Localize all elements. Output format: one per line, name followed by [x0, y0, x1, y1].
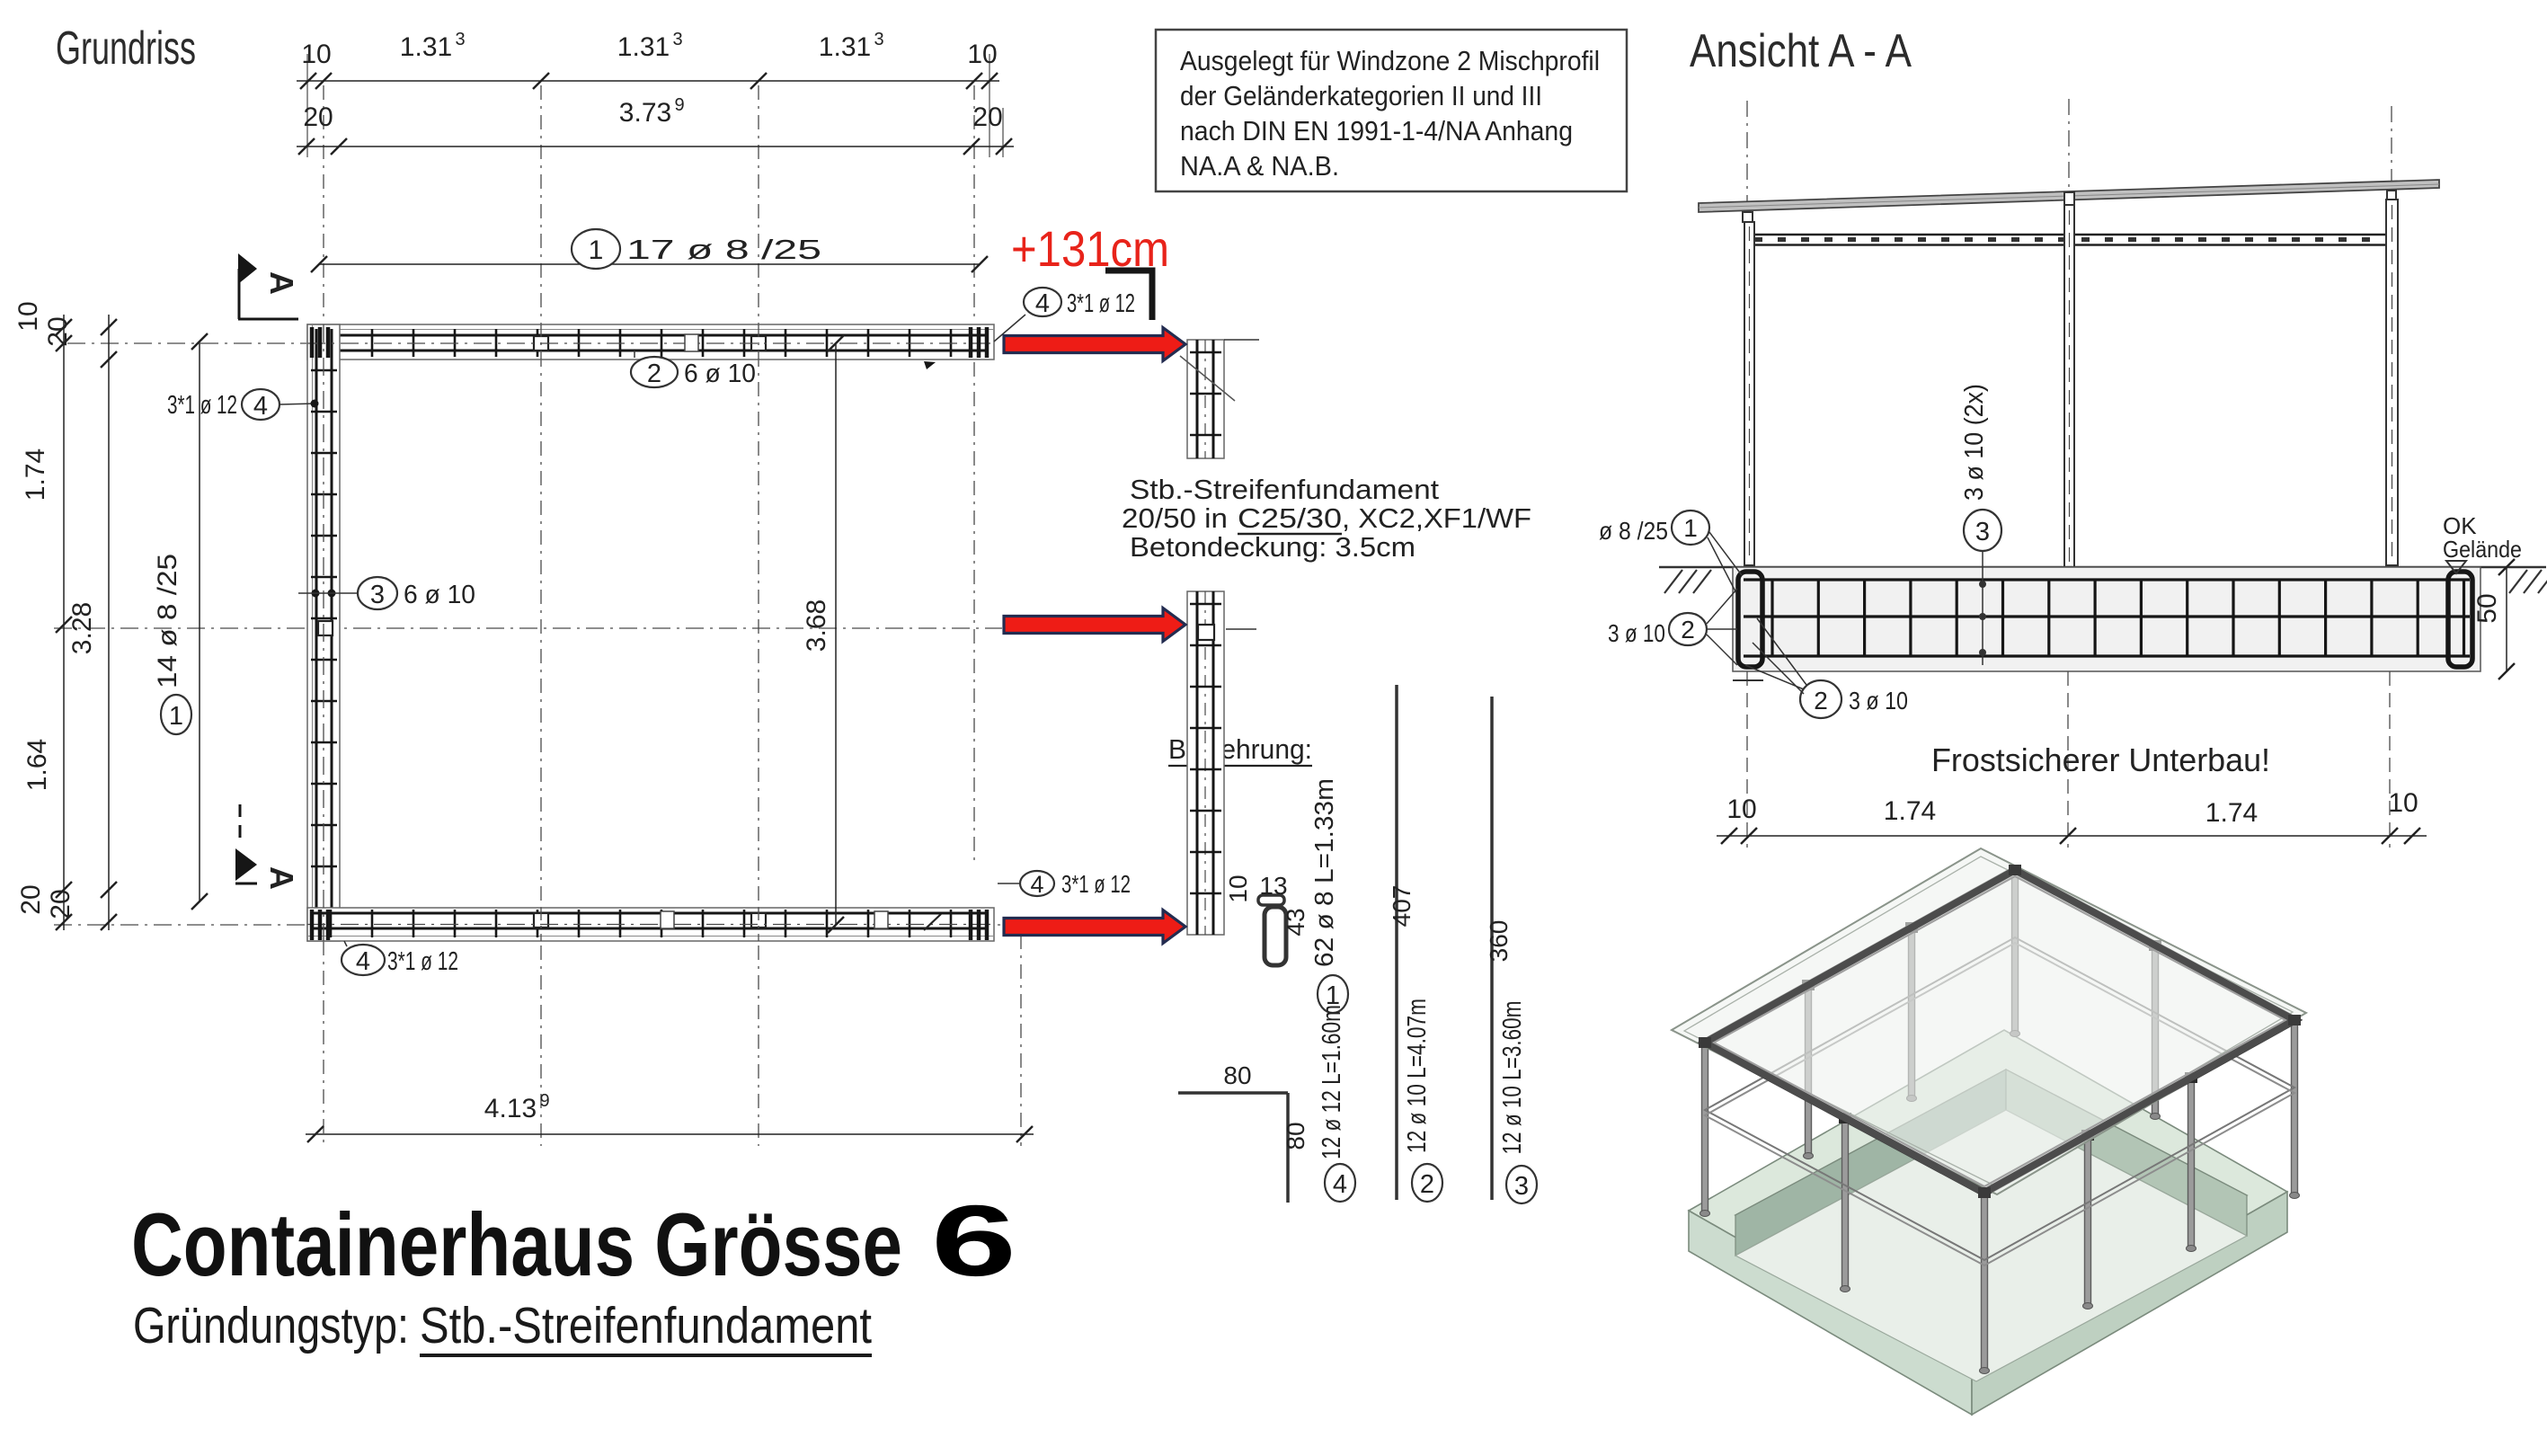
- svg-text:3: 3: [672, 30, 682, 49]
- svg-text:50: 50: [2472, 593, 2502, 623]
- svg-text:3*1 ø 12: 3*1 ø 12: [1061, 870, 1131, 898]
- svg-text:2: 2: [647, 360, 661, 388]
- svg-text:Stb.-Streifenfundament: Stb.-Streifenfundament: [420, 1297, 872, 1354]
- svg-text:Ausgelegt für Windzone 2 Misch: Ausgelegt für Windzone 2 Mischprofil: [1180, 45, 1600, 76]
- svg-text:A: A: [263, 271, 300, 295]
- svg-text:1.31: 1.31: [617, 32, 670, 62]
- svg-text:1.74: 1.74: [21, 448, 50, 501]
- svg-text:Containerhaus Grösse: Containerhaus Grösse: [131, 1194, 902, 1294]
- svg-text:80: 80: [1223, 1061, 1251, 1089]
- svg-text:1.64: 1.64: [22, 739, 52, 791]
- svg-text:Gründungstyp:: Gründungstyp:: [133, 1297, 409, 1354]
- svg-text:1: 1: [169, 702, 183, 731]
- svg-text:Grundriss: Grundriss: [56, 22, 196, 75]
- svg-text:4: 4: [1333, 1170, 1347, 1199]
- svg-text:ø 8 /25: ø 8 /25: [1599, 517, 1668, 545]
- svg-text:2: 2: [1420, 1170, 1434, 1199]
- svg-text:1.31: 1.31: [400, 32, 452, 62]
- svg-text:20: 20: [972, 102, 1002, 132]
- svg-text:3: 3: [1514, 1172, 1529, 1201]
- svg-text:13: 13: [1259, 872, 1287, 900]
- svg-text:nach DIN EN 1991-1-4/NA Anhang: nach DIN EN 1991-1-4/NA Anhang: [1180, 115, 1573, 146]
- svg-text:6 ø 10: 6 ø 10: [684, 360, 756, 388]
- svg-text:Betondeckung: 3.5cm: Betondeckung: 3.5cm: [1130, 531, 1415, 563]
- svg-text:14 ø 8 /25: 14 ø 8 /25: [153, 554, 182, 688]
- svg-text:12 ø 10 L=4.07m: 12 ø 10 L=4.07m: [1403, 999, 1432, 1153]
- svg-text:12 ø 12 L=1.60m: 12 ø 12 L=1.60m: [1318, 1005, 1346, 1159]
- svg-text:10: 10: [1224, 874, 1252, 902]
- svg-text:10: 10: [2388, 788, 2418, 818]
- svg-text:80: 80: [1282, 1122, 1309, 1150]
- svg-text:4: 4: [356, 947, 370, 976]
- svg-text:C25/30: C25/30: [1238, 502, 1342, 534]
- svg-text:3*1 ø 12: 3*1 ø 12: [387, 947, 458, 976]
- svg-text:2: 2: [1681, 616, 1695, 644]
- svg-text:10: 10: [967, 40, 997, 69]
- svg-text:10: 10: [1726, 795, 1756, 824]
- svg-text:9: 9: [674, 95, 684, 115]
- svg-text:1.74: 1.74: [2205, 798, 2258, 828]
- svg-text:Ansicht A - A: Ansicht A - A: [1690, 25, 1912, 77]
- svg-text:2: 2: [1814, 687, 1828, 715]
- svg-text:20: 20: [16, 884, 46, 914]
- svg-text:Gelände: Gelände: [2443, 536, 2522, 563]
- svg-text:4: 4: [253, 392, 268, 421]
- svg-text:12 ø 10 L=3.60m: 12 ø 10 L=3.60m: [1498, 1001, 1527, 1155]
- svg-text:A: A: [263, 866, 300, 890]
- svg-text:3: 3: [874, 30, 883, 49]
- svg-text:360: 360: [1485, 920, 1513, 963]
- svg-text:4: 4: [1030, 871, 1043, 898]
- svg-text:20: 20: [46, 889, 75, 919]
- svg-text:3 ø 10: 3 ø 10: [1608, 619, 1665, 647]
- svg-text:20/50 in: 20/50 in: [1122, 502, 1228, 534]
- svg-text:Stb.-Streifenfundament: Stb.-Streifenfundament: [1130, 474, 1439, 505]
- svg-text:62 ø 8 L=1.33m: 62 ø 8 L=1.33m: [1310, 778, 1339, 967]
- svg-text:1: 1: [1683, 514, 1698, 542]
- svg-text:3: 3: [370, 581, 385, 609]
- svg-text:6 ø 10: 6 ø 10: [404, 581, 475, 609]
- svg-text:, XC2,XF1/WF: , XC2,XF1/WF: [1342, 502, 1531, 534]
- svg-text:10: 10: [301, 40, 331, 69]
- svg-text:1.31: 1.31: [819, 32, 871, 62]
- svg-text:4: 4: [1035, 289, 1050, 318]
- svg-text:3: 3: [1975, 518, 1990, 546]
- svg-text:407: 407: [1388, 885, 1415, 928]
- svg-text:NA.A & NA.B.: NA.A & NA.B.: [1180, 150, 1339, 182]
- svg-text:20: 20: [43, 316, 73, 346]
- svg-text:20: 20: [303, 102, 333, 132]
- svg-text:3.28: 3.28: [67, 602, 97, 654]
- svg-text:3 ø 10 (2x): 3 ø 10 (2x): [1960, 384, 1989, 501]
- svg-text:17 ø 8 /25: 17 ø 8 /25: [626, 234, 821, 265]
- svg-text:3: 3: [455, 30, 465, 49]
- svg-text:10: 10: [13, 301, 43, 331]
- svg-text:4.13: 4.13: [484, 1094, 537, 1123]
- svg-text:3*1 ø 12: 3*1 ø 12: [1067, 289, 1135, 318]
- svg-text:1: 1: [589, 235, 604, 265]
- svg-text:3.73: 3.73: [619, 98, 671, 128]
- svg-text:Frostsicherer Unterbau!: Frostsicherer Unterbau!: [1931, 741, 2270, 778]
- svg-text:1.74: 1.74: [1884, 796, 1936, 826]
- svg-text:3*1 ø 12: 3*1 ø 12: [167, 391, 237, 420]
- svg-text:der Geländerkategorien II und: der Geländerkategorien II und III: [1180, 80, 1542, 111]
- svg-text:9: 9: [539, 1091, 549, 1111]
- svg-text:3.68: 3.68: [802, 599, 831, 652]
- svg-text:6: 6: [931, 1185, 1016, 1297]
- svg-text:43: 43: [1282, 908, 1309, 936]
- svg-text:3 ø 10: 3 ø 10: [1849, 687, 1908, 715]
